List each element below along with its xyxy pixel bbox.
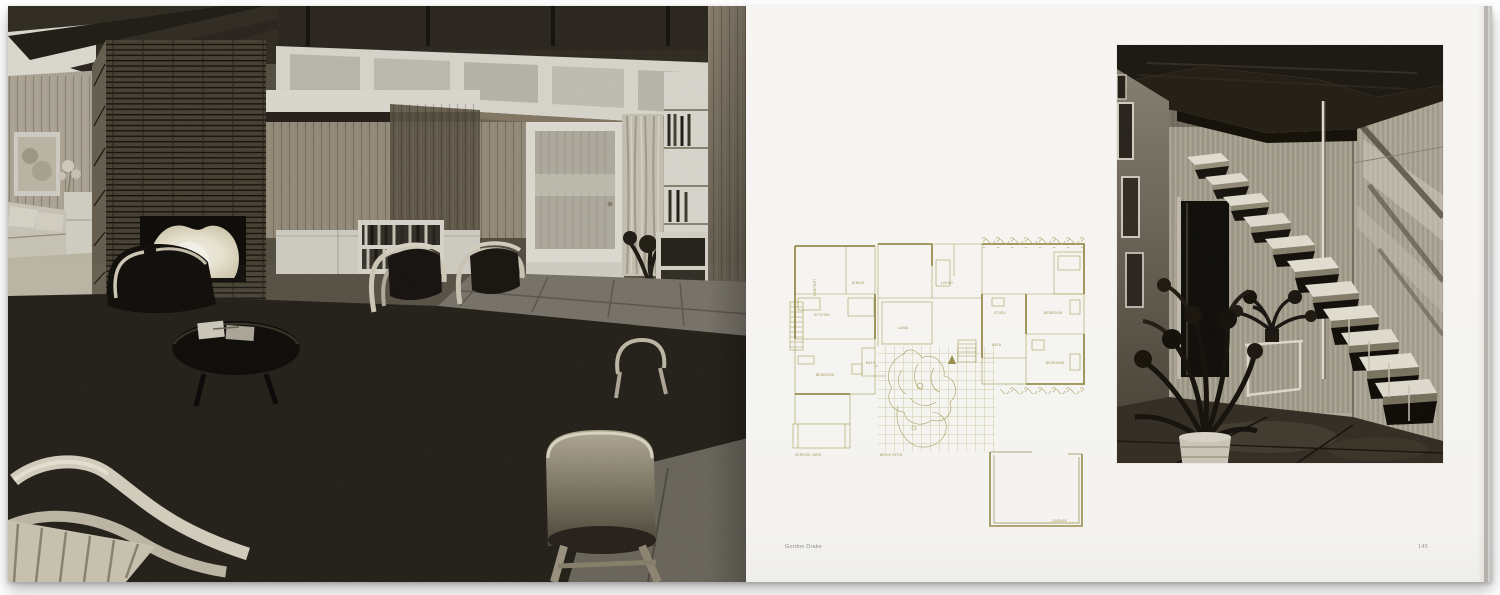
plan-label: CARPORT	[813, 279, 817, 296]
floor-plan-drawing: DINING LIVING KITCHEN LANAI BATH BEDROOM…	[786, 236, 1094, 536]
living-room-photo	[8, 6, 746, 582]
patio-grid	[878, 346, 995, 452]
plan-label: SERVICE YARD	[795, 453, 822, 457]
gutter-highlight	[1488, 6, 1492, 582]
plan-label: LANAI	[898, 326, 908, 330]
plan-label: BEDROOM	[1046, 361, 1064, 365]
plan-label: BEDROOM	[1044, 311, 1062, 315]
plan-label: BEDROOM	[816, 373, 834, 377]
left-page	[8, 6, 746, 582]
plan-label: GARAGE	[1052, 519, 1067, 523]
plan-label: BATH	[866, 361, 876, 365]
planting-hatch-top	[982, 236, 1084, 248]
plan-label: STUDY	[994, 311, 1007, 315]
plan-label: BATH	[992, 343, 1002, 347]
staircase-photo	[1117, 45, 1443, 463]
right-page: DINING LIVING KITCHEN LANAI BATH BEDROOM…	[746, 6, 1492, 582]
garage-outline	[990, 452, 1082, 526]
plan-label: DINING	[852, 281, 865, 285]
plan-label: BRICK PATIO	[880, 453, 903, 457]
plan-label: KITCHEN	[814, 313, 830, 317]
page-number: 145	[1418, 544, 1428, 550]
page-edge-shadow	[1478, 6, 1492, 582]
gutter-shadow-right	[1484, 6, 1492, 582]
planting-hatch-bottom	[1000, 384, 1084, 394]
book-spread-scene: DINING LIVING KITCHEN LANAI BATH BEDROOM…	[0, 0, 1500, 595]
photo-credit: Gordon Drake	[785, 544, 822, 551]
plan-label: LIVING	[941, 281, 953, 285]
open-book: DINING LIVING KITCHEN LANAI BATH BEDROOM…	[8, 6, 1492, 582]
